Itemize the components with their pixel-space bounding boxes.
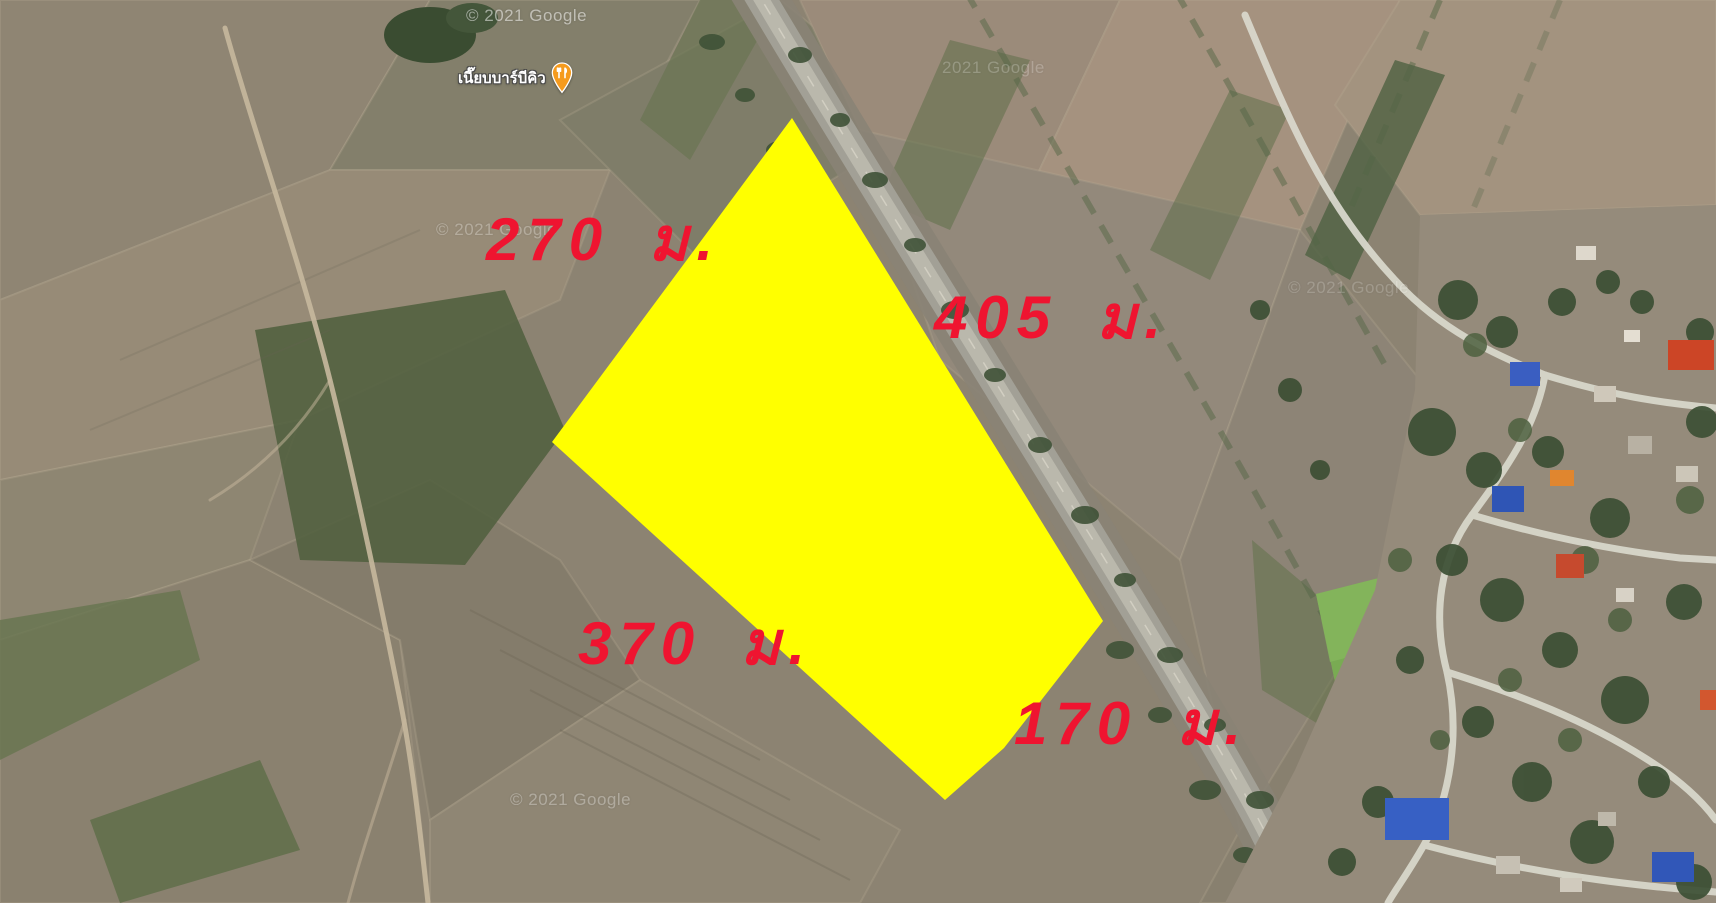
restaurant-pin-icon[interactable] [551,62,573,94]
poi-name: เนี๊ยบบาร์บีคิว [458,66,546,90]
satellite-imagery [0,0,1716,903]
poi-label-group: เนี๊ยบบาร์บีคิว [458,62,573,94]
map-canvas[interactable]: © 2021 Google 2021 Google © 2021 Google … [0,0,1716,903]
google-watermark: © 2021 Google [510,790,631,810]
google-watermark: © 2021 Google [466,6,587,26]
google-watermark: 2021 Google [942,58,1045,78]
measurement-label-northwest: 270 ม. [486,210,721,270]
measurement-label-southeast: 170 ม. [1014,694,1249,754]
measurement-label-northeast: 405 ม. [934,288,1169,348]
google-watermark: © 2021 Google [1288,278,1409,298]
measurement-label-southwest: 370 ม. [578,614,813,674]
